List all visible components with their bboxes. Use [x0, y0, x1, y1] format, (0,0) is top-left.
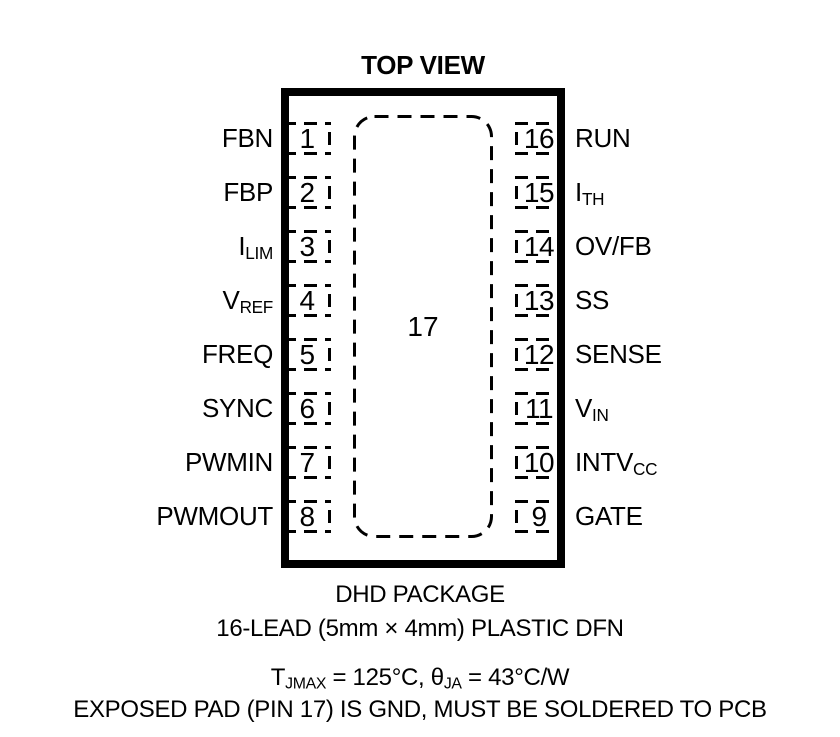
pin-3-number: 3: [283, 230, 331, 263]
pin-8-number: 8: [283, 500, 331, 533]
pin-label-subscript: REF: [240, 297, 273, 317]
pin-configuration-diagram: TOP VIEW 1 2 3 4 5 6 7 8 16 15 14 13 12 …: [0, 0, 840, 737]
pin-15-number: 15: [515, 176, 563, 209]
pin-label-ith: ITH: [575, 175, 604, 209]
pin-label-text: FBN: [222, 123, 273, 153]
pin-label-freq: FREQ: [202, 337, 273, 371]
package-outline: 1 2 3 4 5 6 7 8 16 15 14 13 12 11 10 9 1…: [281, 88, 565, 568]
pin-7-number: 7: [283, 446, 331, 479]
pin-10-number: 10: [515, 446, 563, 479]
package-description: 16-LEAD (5mm × 4mm) PLASTIC DFN: [0, 615, 840, 643]
thermal-text: = 125°C, θ: [326, 664, 444, 691]
pin-14-pad: 14: [515, 230, 563, 263]
pin-label-text: GATE: [575, 501, 643, 531]
pin-17-number: 17: [353, 115, 493, 538]
pin-label-gate: GATE: [575, 499, 643, 533]
pin-13-number: 13: [515, 284, 563, 317]
pin-label-vref: VREF: [223, 283, 273, 317]
pin-5-pad: 5: [283, 338, 331, 371]
pin-13-pad: 13: [515, 284, 563, 317]
pin-label-text: PWMOUT: [156, 501, 273, 531]
pin-1-pad: 1: [283, 122, 331, 155]
pin-12-pad: 12: [515, 338, 563, 371]
pin-11-pad: 11: [515, 392, 563, 425]
pin-label-sync: SYNC: [202, 391, 273, 425]
pin-label-text: V: [575, 393, 592, 423]
pin-12-number: 12: [515, 338, 563, 371]
pin-label-fbp: FBP: [223, 175, 273, 209]
thermal-subscript: JMAX: [285, 675, 326, 692]
pin-label-ilim: ILIM: [238, 229, 273, 263]
pin-2-number: 2: [283, 176, 331, 209]
pin-label-text: OV/FB: [575, 231, 652, 261]
pin-15-pad: 15: [515, 176, 563, 209]
pin-label-text: FBP: [223, 177, 273, 207]
pin-7-pad: 7: [283, 446, 331, 479]
exposed-pad: 17: [353, 115, 493, 538]
pin-label-text: INTV: [575, 447, 633, 477]
pin-label-fbn: FBN: [222, 121, 273, 155]
pin-label-text: I: [575, 177, 582, 207]
pin-label-pwmin: PWMIN: [185, 445, 273, 479]
pin-label-ovfb: OV/FB: [575, 229, 652, 263]
thermal-text: = 43°C/W: [462, 664, 570, 691]
pin-6-pad: 6: [283, 392, 331, 425]
pin-label-vin: VIN: [575, 391, 609, 425]
pin-2-pad: 2: [283, 176, 331, 209]
package-name: DHD PACKAGE: [0, 581, 840, 609]
pin-11-number: 11: [515, 392, 563, 425]
pin-label-text: SS: [575, 285, 609, 315]
pin-label-text: PWMIN: [185, 447, 273, 477]
pin-label-run: RUN: [575, 121, 630, 155]
top-view-title: TOP VIEW: [281, 50, 565, 81]
pin-10-pad: 10: [515, 446, 563, 479]
pin-label-text: SYNC: [202, 393, 273, 423]
pin-label-subscript: CC: [633, 459, 657, 479]
pin-4-pad: 4: [283, 284, 331, 317]
pin-label-subscript: LIM: [245, 243, 273, 263]
pin-6-number: 6: [283, 392, 331, 425]
pin-14-number: 14: [515, 230, 563, 263]
pin-1-number: 1: [283, 122, 331, 155]
thermal-subscript: JA: [444, 675, 462, 692]
exposed-pad-note: EXPOSED PAD (PIN 17) IS GND, MUST BE SOL…: [0, 696, 840, 724]
pin-label-subscript: TH: [582, 189, 604, 209]
pin-label-intvcc: INTVCC: [575, 445, 657, 479]
thermal-spec: TJMAX = 125°C, θJA = 43°C/W: [0, 664, 840, 692]
pin-4-number: 4: [283, 284, 331, 317]
pin-5-number: 5: [283, 338, 331, 371]
pin-label-ss: SS: [575, 283, 609, 317]
pin-9-pad: 9: [515, 500, 563, 533]
pin-label-text: V: [223, 285, 240, 315]
pin-label-pwmout: PWMOUT: [156, 499, 273, 533]
pin-label-text: RUN: [575, 123, 630, 153]
pin-label-text: SENSE: [575, 339, 662, 369]
pin-3-pad: 3: [283, 230, 331, 263]
pin-label-sense: SENSE: [575, 337, 662, 371]
pin-16-pad: 16: [515, 122, 563, 155]
pin-8-pad: 8: [283, 500, 331, 533]
pin-9-number: 9: [515, 500, 563, 533]
pin-label-subscript: IN: [592, 405, 609, 425]
pin-label-text: FREQ: [202, 339, 273, 369]
pin-16-number: 16: [515, 122, 563, 155]
thermal-text: T: [271, 664, 285, 691]
